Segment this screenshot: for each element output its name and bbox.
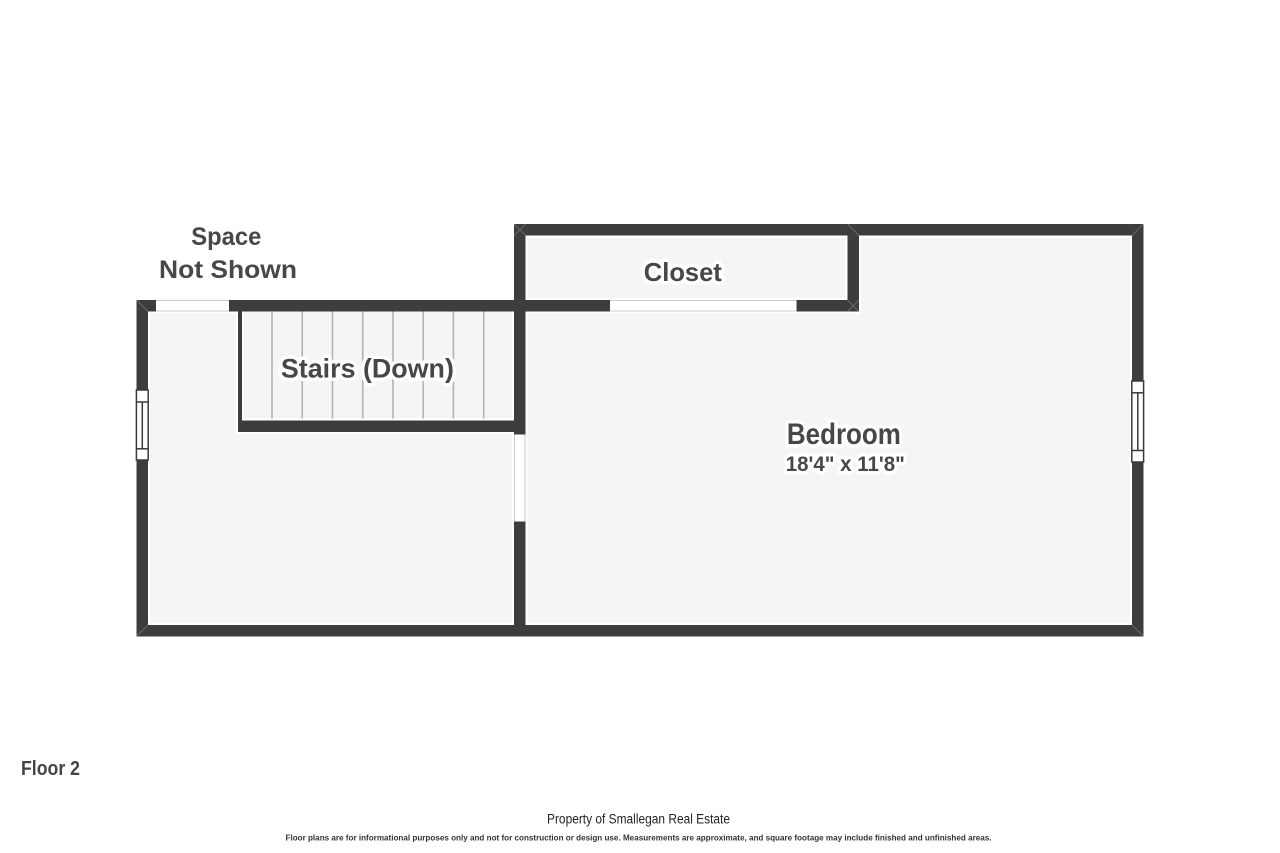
svg-text:Bedroom: Bedroom	[787, 418, 901, 451]
svg-text:Floor plans are for informatio: Floor plans are for informational purpos…	[286, 833, 992, 843]
svg-text:Property of Smallegan Real Est: Property of Smallegan Real Estate	[547, 812, 730, 827]
svg-text:Floor 2: Floor 2	[21, 758, 80, 780]
svg-text:Closet: Closet	[644, 257, 722, 287]
svg-text:Not Shown: Not Shown	[159, 256, 297, 284]
svg-text:Space: Space	[191, 223, 261, 251]
svg-text:18'4" x 11'8": 18'4" x 11'8"	[786, 452, 905, 476]
svg-text:Stairs (Down): Stairs (Down)	[281, 353, 454, 383]
